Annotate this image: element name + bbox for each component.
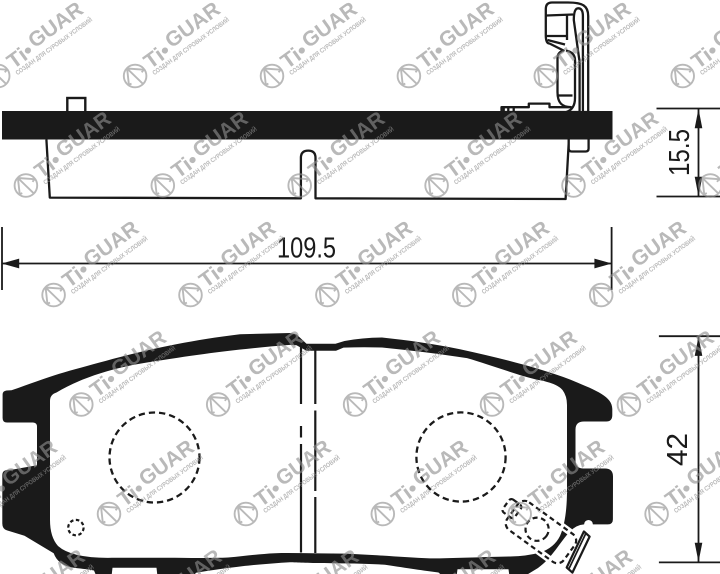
- svg-text:109.5: 109.5: [277, 233, 336, 265]
- svg-text:42: 42: [662, 433, 694, 466]
- svg-text:15.5: 15.5: [664, 129, 696, 176]
